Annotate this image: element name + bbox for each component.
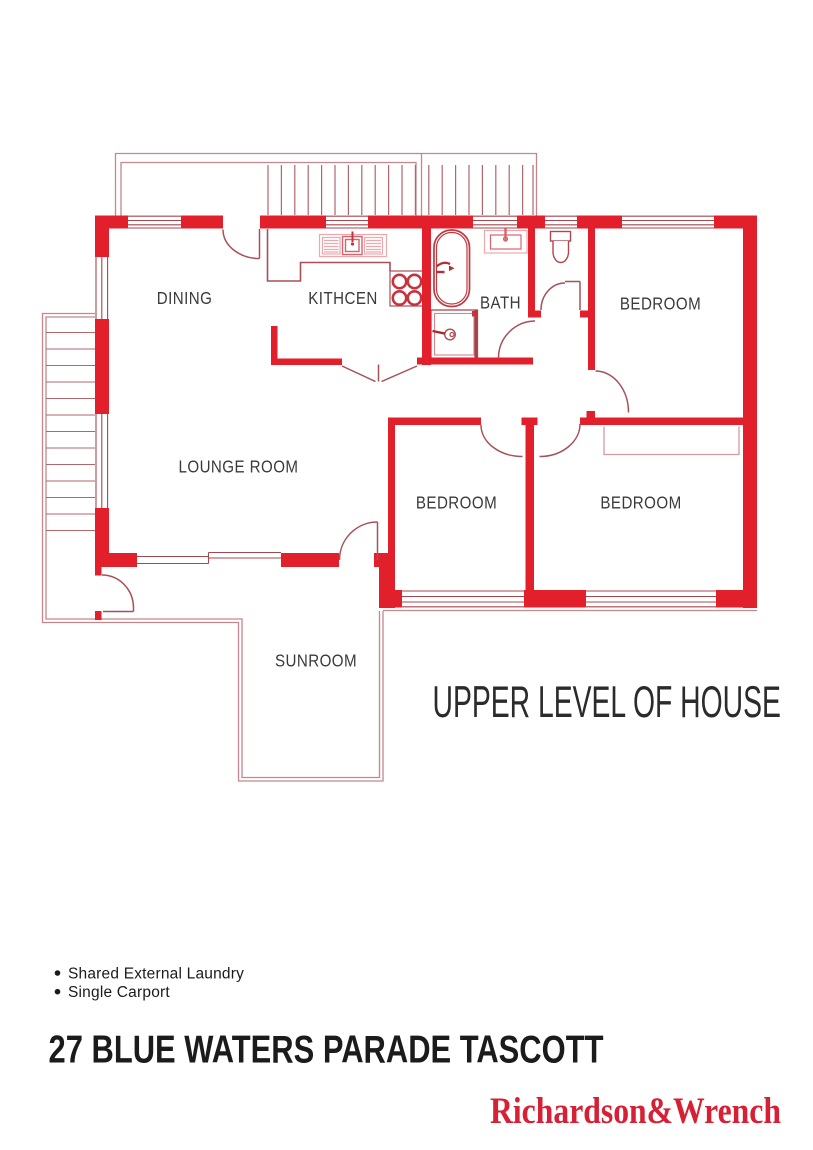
svg-text:BEDROOM: BEDROOM xyxy=(416,494,497,513)
svg-text:UPPER LEVEL OF HOUSE: UPPER LEVEL OF HOUSE xyxy=(433,676,781,726)
svg-text:LOUNGE ROOM: LOUNGE ROOM xyxy=(179,458,299,477)
svg-text:BEDROOM: BEDROOM xyxy=(620,295,701,314)
svg-text:SUNROOM: SUNROOM xyxy=(275,652,357,671)
svg-text:KITHCEN: KITHCEN xyxy=(308,289,377,308)
svg-text:BEDROOM: BEDROOM xyxy=(600,494,681,513)
svg-text:DINING: DINING xyxy=(157,289,213,308)
svg-text:Richardson&Wrench: Richardson&Wrench xyxy=(490,1090,781,1132)
svg-text:27 BLUE WATERS PARADE TASCOTT: 27 BLUE WATERS PARADE TASCOTT xyxy=(49,1028,604,1071)
svg-text:BATH: BATH xyxy=(480,294,521,313)
svg-text:Single Carport: Single Carport xyxy=(68,984,170,1001)
svg-text:Shared External Laundry: Shared External Laundry xyxy=(68,966,244,983)
